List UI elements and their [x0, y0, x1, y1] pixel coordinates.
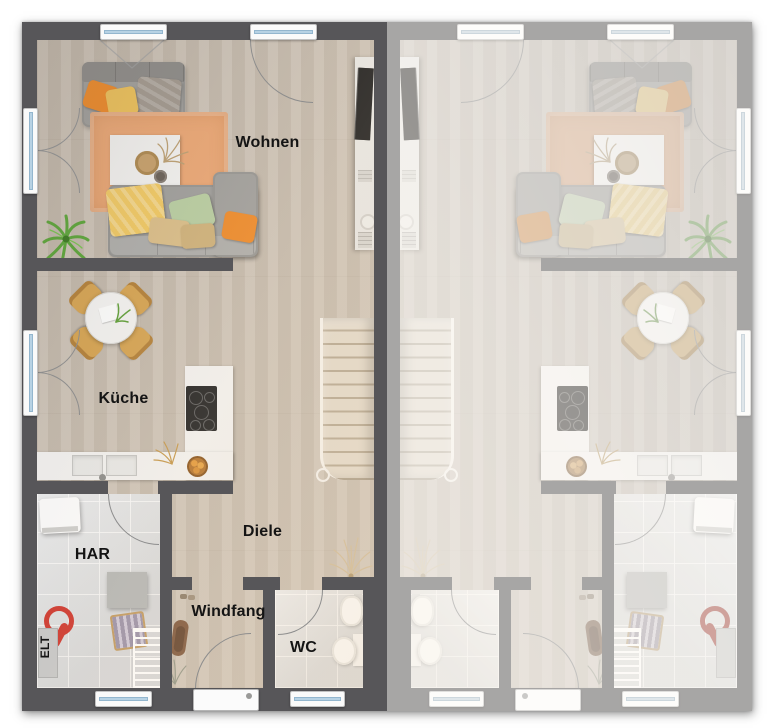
- cooktop-burner: [571, 391, 585, 405]
- storage-box: [627, 572, 667, 608]
- wall-kitchen-utility: [158, 481, 233, 494]
- entrance-door-handle: [246, 693, 252, 699]
- cooktop-burner: [565, 405, 580, 420]
- window-opening-lines: [98, 38, 168, 72]
- cooktop-burner: [190, 420, 201, 431]
- wall-wc-top-stub: [494, 577, 499, 590]
- cooktop-burner: [204, 392, 215, 403]
- floorplan-sheet: Wohnen Küche Diele HAR ELT Windfang WC: [22, 22, 752, 711]
- sink-basin: [106, 455, 137, 476]
- cooktop-burner: [559, 419, 571, 431]
- room-label-utility: HAR: [50, 546, 135, 564]
- sink-faucet: [668, 474, 675, 481]
- table-plant-sprig: [642, 302, 664, 326]
- window-top-living: [607, 24, 674, 40]
- dried-flowers-counter: [150, 438, 180, 468]
- floorplan-page: Wohnen Küche Diele HAR ELT Windfang WC: [0, 0, 775, 728]
- room-label-wc: WC: [261, 639, 346, 657]
- fruit-bowl: [187, 456, 208, 477]
- sink-basin: [637, 455, 668, 476]
- room-label-kitchen: Küche: [81, 390, 166, 408]
- unit-right-mirrored-floorplan: [387, 22, 752, 711]
- dried-flowers-counter: [594, 438, 624, 468]
- books-stack: [402, 170, 416, 182]
- terrace-door-top: [457, 24, 524, 40]
- entrance-door-handle: [522, 693, 528, 699]
- washbasin: [411, 596, 434, 626]
- wall-kitchen-utility: [541, 481, 616, 494]
- window-top-living: [100, 24, 167, 40]
- storage-box: [107, 572, 147, 608]
- table-plant-sprig: [110, 302, 132, 326]
- decor-cup: [607, 170, 620, 183]
- window-bottom-utility: [622, 691, 679, 707]
- shoes: [188, 595, 195, 600]
- unit-right-floorplan: [387, 22, 752, 711]
- decor-dish: [398, 214, 414, 230]
- french-window-kitchen: [23, 330, 38, 416]
- room-label-hall: Diele: [220, 523, 305, 541]
- stair-newel-curl: [316, 468, 330, 482]
- wall-vestibule-wc: [499, 577, 511, 688]
- toilet-bowl: [418, 637, 442, 665]
- stair-newel-curl: [444, 468, 458, 482]
- window-opening-lines: [606, 38, 676, 72]
- window-bottom-wc: [290, 691, 345, 707]
- staircase: [397, 318, 454, 480]
- room-label-vestibule: Windfang: [186, 603, 271, 621]
- wall-living-kitchen: [37, 258, 233, 271]
- party-wall: [374, 22, 387, 711]
- dried-plant-hall: [328, 532, 374, 580]
- fruit-bowl: [566, 456, 587, 477]
- wall-vestibule-wc: [263, 577, 275, 688]
- cooktop-burner: [573, 420, 584, 431]
- wall-top: [22, 22, 387, 40]
- shoes: [579, 595, 586, 600]
- unit-left-floorplan: Wohnen Küche Diele HAR ELT Windfang WC: [22, 22, 387, 711]
- cooktop-burner: [194, 405, 209, 420]
- french-window-living: [23, 108, 38, 194]
- books-stack: [402, 232, 416, 248]
- wall-vestibule-stub-left: [582, 577, 614, 590]
- books-stack: [358, 170, 372, 182]
- dried-plant-hall: [400, 532, 446, 580]
- decor-cup: [154, 170, 167, 183]
- wall-wc-right: [363, 582, 374, 688]
- party-wall: [387, 22, 400, 711]
- cooktop-burner: [559, 392, 570, 403]
- pillow-orange: [221, 210, 258, 243]
- wall-top: [387, 22, 752, 40]
- sink-faucet: [99, 474, 106, 481]
- terrace-door-top: [250, 24, 317, 40]
- wall-kitchen-utility: [666, 481, 737, 494]
- pillow-tan: [558, 223, 594, 249]
- french-window-living: [736, 108, 751, 194]
- shoes: [587, 594, 594, 599]
- wall-utility-right: [160, 494, 172, 688]
- room-label-electrical: ELT: [38, 627, 52, 667]
- dried-plant-coffee-table: [584, 134, 618, 170]
- wall-living-kitchen: [541, 258, 737, 271]
- wall-kitchen-utility: [37, 481, 108, 494]
- window-bottom-utility: [95, 691, 152, 707]
- electrical-panel: [716, 628, 736, 678]
- wall-utility-right: [602, 494, 614, 688]
- staircase: [320, 318, 377, 480]
- sink-basin: [671, 455, 702, 476]
- dried-plant-coffee-table: [156, 134, 190, 170]
- books-stack: [358, 232, 372, 248]
- french-window-kitchen: [736, 330, 751, 416]
- washbasin: [340, 596, 363, 626]
- pillow-tan: [180, 223, 216, 249]
- wall-vestibule-stub-left: [160, 577, 192, 590]
- pillow-orange: [516, 210, 553, 243]
- shoes: [180, 594, 187, 599]
- wall-wc-top-stub: [275, 577, 280, 590]
- room-label-living: Wohnen: [225, 134, 310, 152]
- cooktop-burner: [203, 419, 215, 431]
- cooktop-burner: [189, 391, 203, 405]
- decor-tray: [615, 151, 639, 175]
- window-bottom-wc: [429, 691, 484, 707]
- sink-basin: [72, 455, 103, 476]
- wall-wc-right: [400, 582, 411, 688]
